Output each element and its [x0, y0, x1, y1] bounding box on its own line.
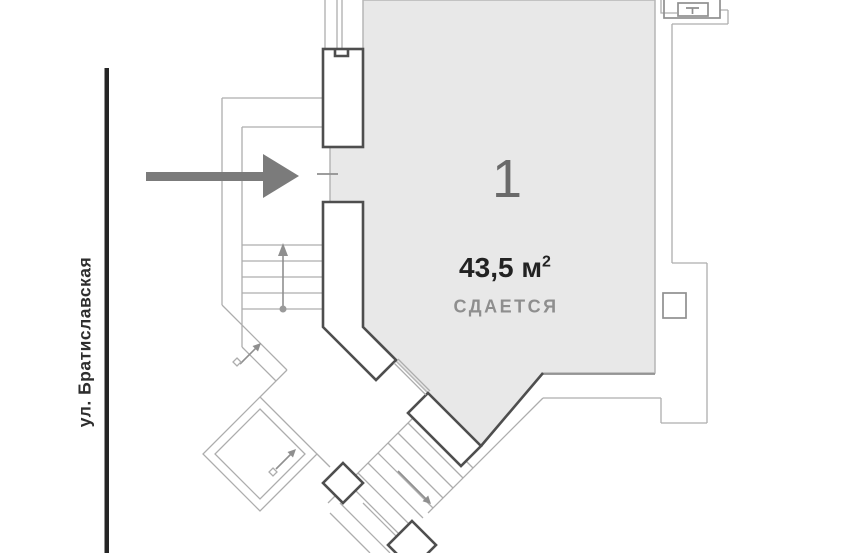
unit-area-superscript: 2 — [542, 254, 551, 271]
stairs-up-arrow-icon — [278, 243, 288, 313]
corridor-lines — [203, 0, 342, 511]
unit-polygon — [330, 0, 655, 446]
stairs-direction-arrow2-icon — [269, 449, 296, 476]
upper-staircase — [242, 243, 323, 313]
column-square-2 — [388, 521, 436, 553]
window-square — [663, 293, 686, 318]
technical-box — [664, 0, 720, 18]
floor-plan-page: ул. Братиславская 1 43,5 м2 СДАЕТСЯ — [0, 0, 844, 553]
unit-status-badge: СДАЕТСЯ — [453, 297, 558, 318]
unit-area-value: 43,5 м — [459, 252, 542, 283]
street-line — [105, 68, 110, 553]
diamond-room-outer — [203, 370, 317, 511]
wall-pier-top — [323, 49, 363, 147]
t-symbol-icon — [686, 8, 699, 14]
unit-area-shape — [330, 0, 655, 446]
street-label: ул. Братиславская — [75, 257, 96, 428]
unit-number: 1 — [492, 148, 522, 210]
floor-plan — [0, 0, 844, 553]
unit-area: 43,5 м2 — [459, 252, 551, 284]
column-square-1 — [323, 463, 363, 503]
stairs-down-arrow-icon — [398, 471, 431, 504]
